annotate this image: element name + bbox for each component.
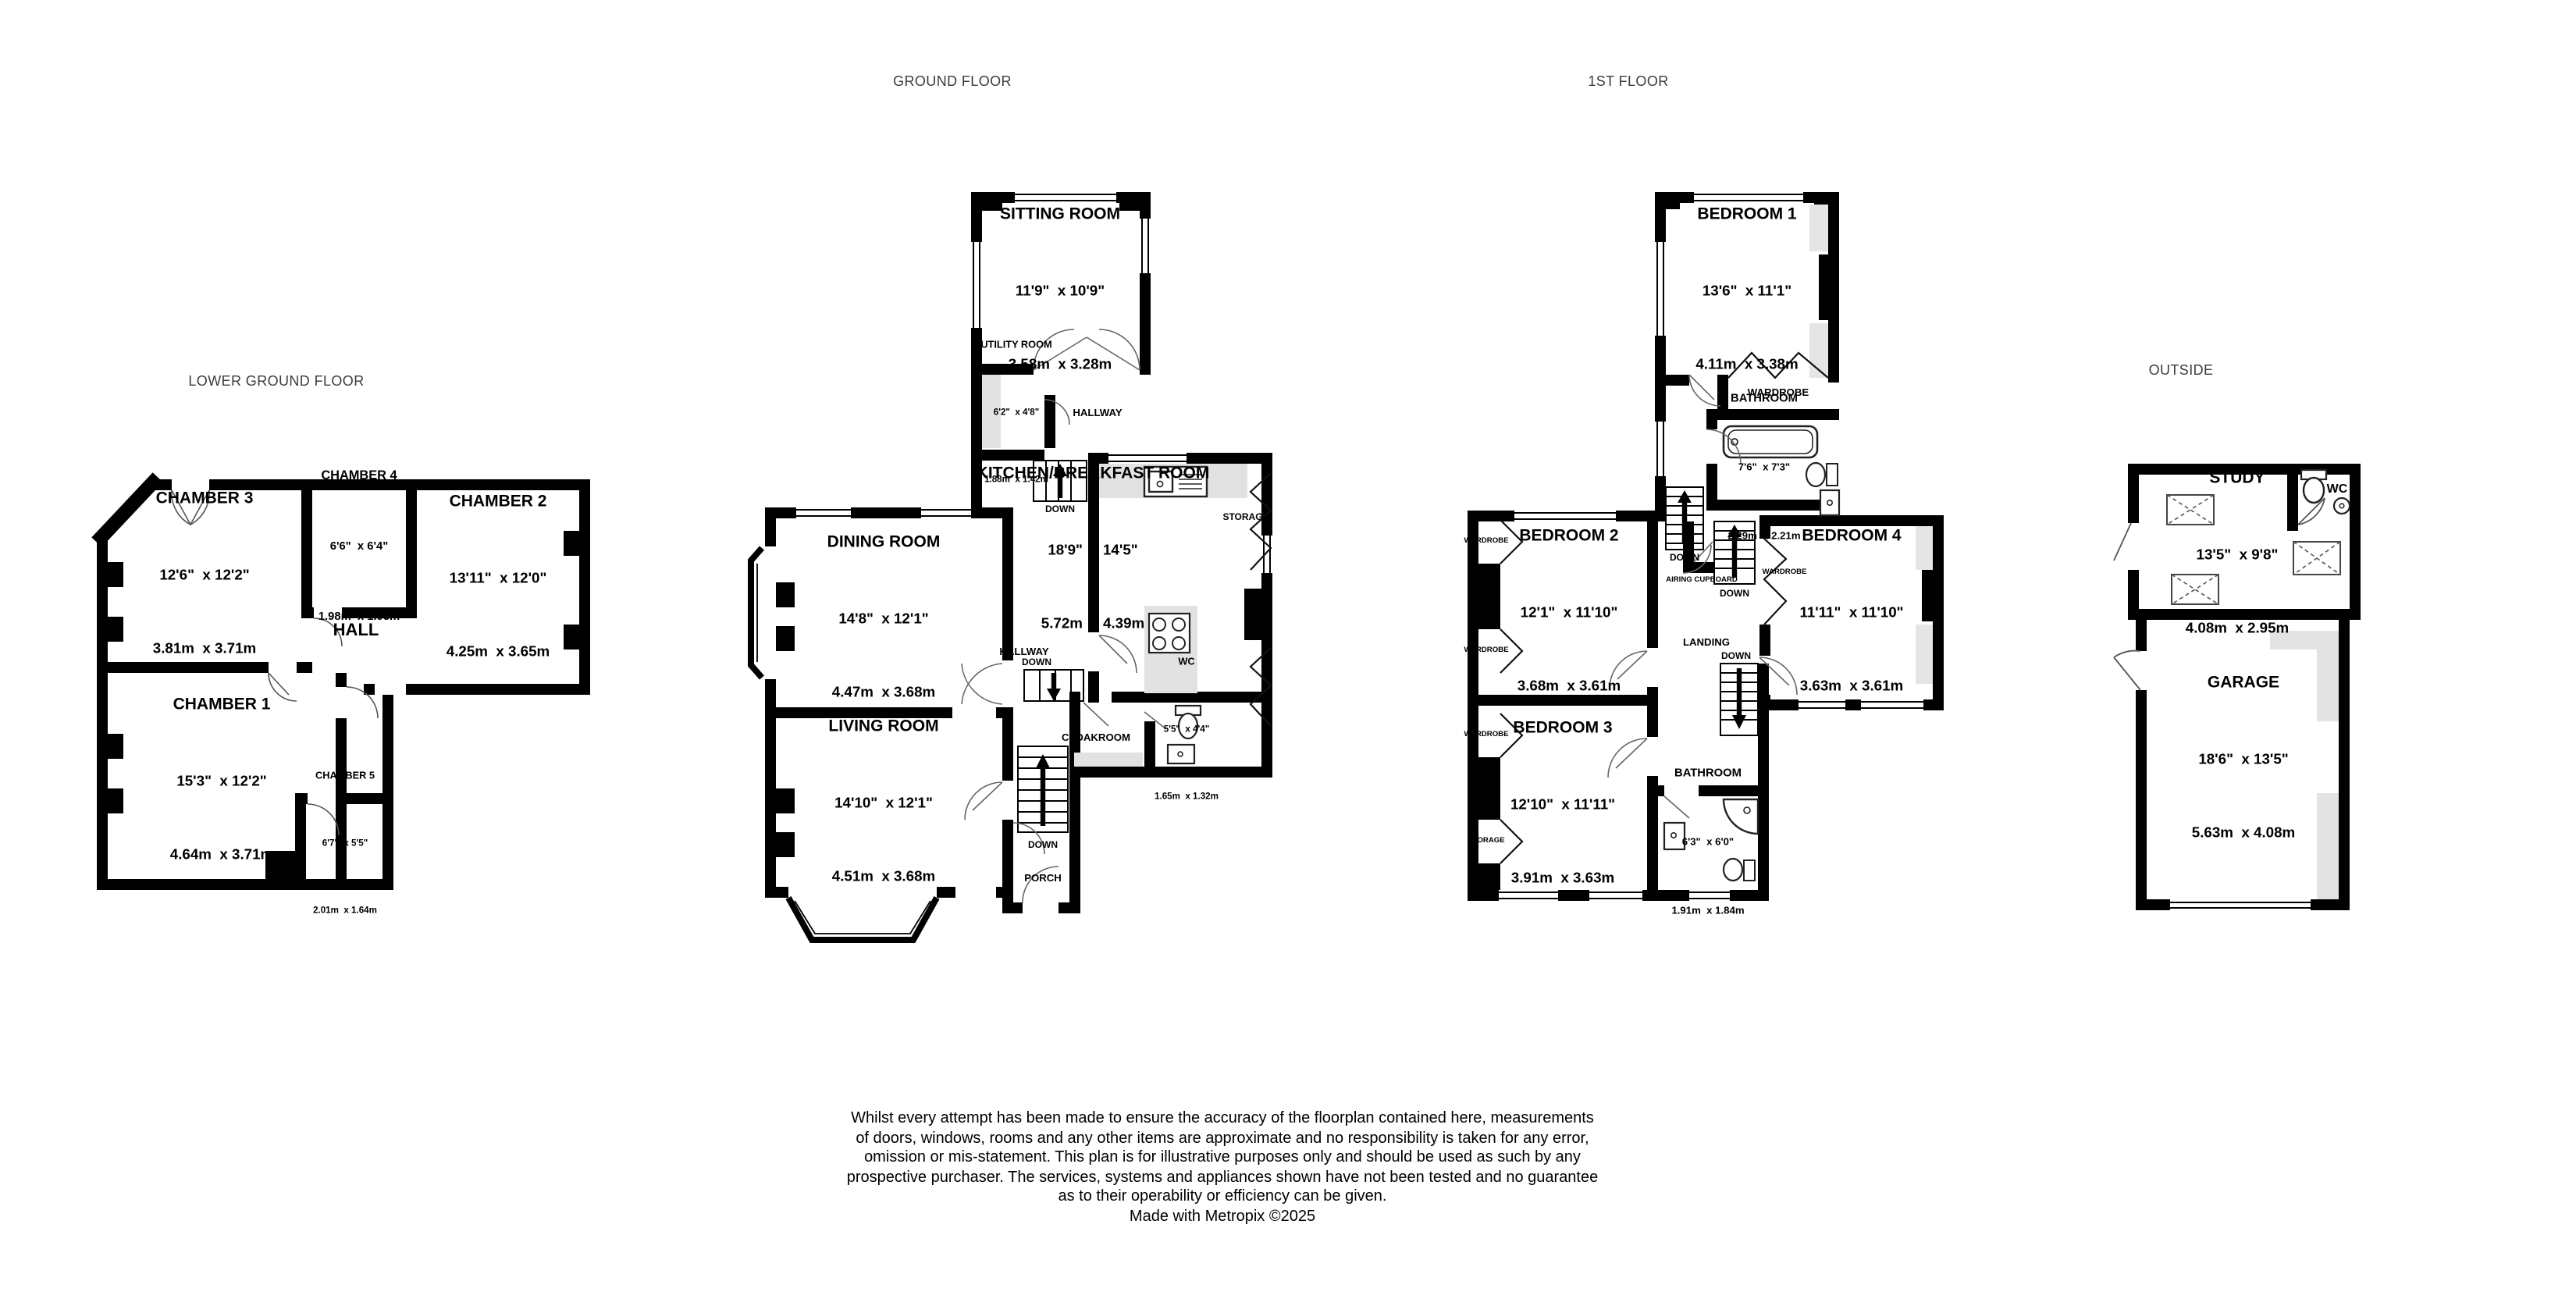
label-storage-kitchen: STORAGE bbox=[1222, 514, 1268, 523]
room-label-living-room: LIVING ROOM 14'10" x 12'1" 4.51m x 3.68m bbox=[828, 663, 938, 943]
title-first-floor: 1ST FLOOR bbox=[1588, 73, 1668, 89]
disclaimer-line: as to their operability or efficiency ca… bbox=[0, 1189, 2445, 1208]
disclaimer-text: Whilst every attempt has been made to en… bbox=[0, 1110, 2445, 1228]
room-label-bathroom-top: BATHROOM 7'6" x 7'3" 2.29m x 2.21m bbox=[1727, 336, 1800, 601]
label-hall: HALL bbox=[333, 621, 379, 640]
label-hallway-mid: HALLWAY bbox=[999, 647, 1048, 658]
disclaimer-line: omission or mis-statement. This plan is … bbox=[0, 1149, 2445, 1169]
label-wardrobe-1: WARDROBE bbox=[1464, 538, 1508, 546]
label-airing-cupboard: AIRING CUPBOARD bbox=[1666, 577, 1738, 585]
label-down-mid: DOWN bbox=[1022, 659, 1051, 668]
disclaimer-line: Whilst every attempt has been made to en… bbox=[0, 1110, 2445, 1130]
disclaimer-line: prospective purchaser. The services, sys… bbox=[0, 1169, 2445, 1189]
label-down-mid-1f: DOWN bbox=[1720, 590, 1749, 600]
room-label-chamber-5: CHAMBER 5 6'7" x 5'5" 2.01m x 1.64m bbox=[313, 715, 377, 975]
label-down-landing: DOWN bbox=[1721, 653, 1751, 662]
label-down-bottom: DOWN bbox=[1028, 842, 1058, 851]
floorplan-page: GROUND FLOOR 1ST FLOOR LOWER GROUND FLOO… bbox=[0, 0, 2576, 1299]
label-wc-outside: WC bbox=[2327, 482, 2348, 496]
title-outside: OUTSIDE bbox=[2149, 362, 2214, 378]
label-wardrobe-2: WARDROBE bbox=[1464, 647, 1508, 655]
room-label-chamber-2: CHAMBER 2 13'11" x 12'0" 4.25m x 3.65m bbox=[447, 438, 550, 718]
room-label-wc-ground: WC 5'5" x 4'4" 1.65m x 1.32m bbox=[1155, 601, 1219, 861]
label-porch: PORCH bbox=[1024, 874, 1062, 884]
room-label-chamber-4: CHAMBER 4 6'6" x 6'4" 1.98m x 1.93m bbox=[318, 412, 400, 681]
label-storage-1f: STORAGE bbox=[1468, 838, 1504, 845]
metropix-credit: Made with Metropix ©2025 bbox=[0, 1208, 2445, 1228]
room-label-bathroom-bottom: BATHROOM 6'3" x 6'0" 1.91m x 1.84m bbox=[1671, 711, 1744, 976]
label-wardrobe-3: WARDROBE bbox=[1464, 731, 1508, 739]
label-landing: LANDING bbox=[1683, 638, 1730, 649]
title-lower-ground-floor: LOWER GROUND FLOOR bbox=[188, 373, 364, 389]
label-cloakroom: CLOAKROOM bbox=[1062, 733, 1130, 744]
room-label-bedroom-4: BEDROOM 4 11'11" x 11'10" 3.63m x 3.61m bbox=[1799, 472, 1903, 753]
disclaimer-line: of doors, windows, rooms and any other i… bbox=[0, 1130, 2445, 1149]
room-label-chamber-1: CHAMBER 1 15'3" x 12'2" 4.64m x 3.71m bbox=[170, 641, 273, 921]
label-down-left-1f: DOWN bbox=[1670, 554, 1699, 564]
room-label-garage: GARAGE 18'6" x 13'5" 5.63m x 4.08m bbox=[2192, 619, 2295, 899]
room-label-bedroom-3: BEDROOM 3 12'10" x 11'11" 3.91m x 3.63m bbox=[1510, 664, 1615, 945]
title-ground-floor: GROUND FLOOR bbox=[893, 73, 1012, 89]
